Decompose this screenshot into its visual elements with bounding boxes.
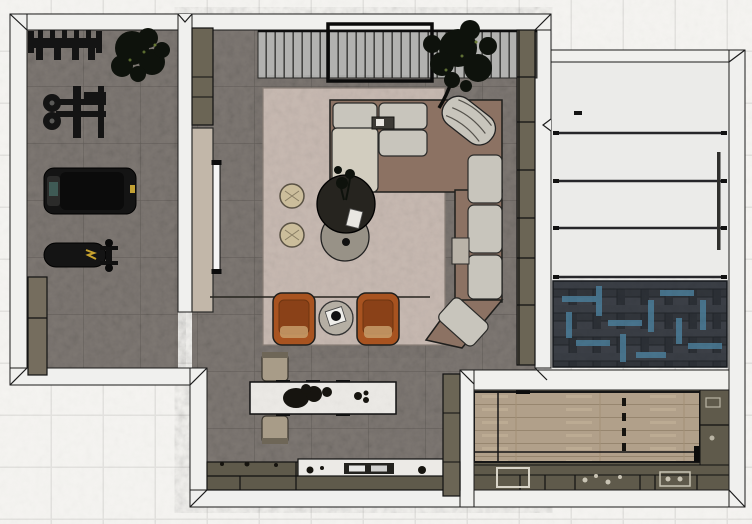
wall-hall-bottom <box>460 370 729 390</box>
wall-media-partition <box>178 14 192 312</box>
tv[interactable] <box>213 162 220 272</box>
floor-plan-svg <box>0 0 752 524</box>
utility-side-counter[interactable] <box>700 390 729 465</box>
side-table-cup <box>331 311 341 321</box>
leather-armchair-right[interactable] <box>357 293 399 345</box>
floor-vent <box>574 111 582 115</box>
armchair-cushion <box>280 326 308 338</box>
sofa-tray-book <box>376 119 384 126</box>
table-cup <box>342 238 350 246</box>
table-clamp <box>516 390 530 394</box>
armchair-cushion <box>364 326 392 338</box>
wall-living-east <box>535 30 551 368</box>
bar-stool-top[interactable] <box>262 354 288 381</box>
bar-stool-top-back <box>262 352 288 358</box>
wall-outer-right <box>729 50 745 507</box>
wall-utility-west <box>460 370 474 507</box>
east-shelving-strip[interactable] <box>517 30 535 365</box>
weight-bench[interactable] <box>44 239 118 272</box>
bar-stool-bottom-back <box>262 438 288 444</box>
handrail[interactable] <box>717 152 721 250</box>
tv-mount-bottom <box>212 269 222 274</box>
hallway-stairs-room <box>551 62 729 368</box>
wall-right-rooms-top <box>551 50 745 62</box>
island-texture <box>250 382 396 414</box>
tall-cabinet[interactable] <box>443 374 460 496</box>
utility-room <box>474 390 729 490</box>
cooktop-burner-right <box>371 466 387 472</box>
cooktop-burner-left <box>349 466 365 472</box>
sofa-arm-table <box>452 238 469 264</box>
treadmill[interactable] <box>44 168 136 214</box>
tv-mount-top <box>212 160 222 165</box>
treadmill-badge <box>130 185 135 193</box>
wall-left <box>10 14 27 385</box>
gym-storage-cabinet[interactable] <box>28 277 47 375</box>
round-side-table[interactable] <box>319 301 353 335</box>
rug-texture <box>553 281 727 367</box>
wall-kitchen-west <box>190 368 207 507</box>
leather-armchair-left[interactable] <box>273 293 315 345</box>
media-panel[interactable] <box>192 128 213 312</box>
slatted-credenza[interactable] <box>258 30 537 78</box>
